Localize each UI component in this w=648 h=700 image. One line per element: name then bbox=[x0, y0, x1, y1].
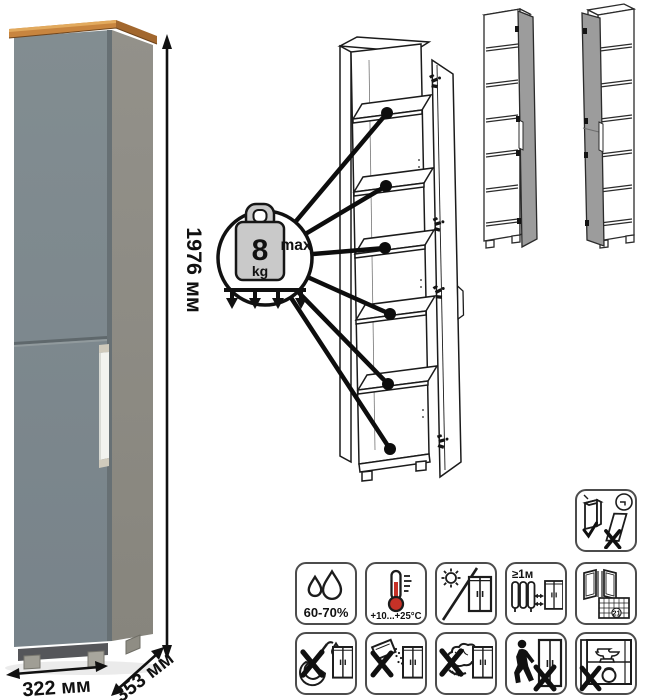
kettlebell-icon bbox=[603, 668, 616, 682]
icon-no-scrub bbox=[435, 632, 497, 695]
open-cabinet-drawing bbox=[340, 37, 464, 481]
icon-no-sunlight bbox=[435, 562, 497, 625]
calendar-day: 21 bbox=[612, 608, 620, 617]
calendar-icon: 21 bbox=[599, 598, 629, 618]
icon-anti-tip bbox=[575, 489, 637, 552]
product-sheet: 1976 мм 322 мм 353 мм bbox=[0, 0, 648, 700]
wardrobe-glyph bbox=[545, 581, 563, 609]
temperature-label: +10...+25°C bbox=[371, 611, 422, 622]
icon-temperature: +10...+25°C bbox=[365, 562, 427, 625]
open-window-icon bbox=[584, 570, 616, 599]
radiator-distance-icon: ≥1м bbox=[509, 566, 563, 622]
no-water-icon bbox=[299, 636, 353, 692]
powder-dots bbox=[395, 647, 403, 664]
icon-humidity: 60-70% bbox=[295, 562, 357, 625]
load-unit: kg bbox=[252, 263, 268, 279]
distance-label: ≥1м bbox=[512, 569, 533, 581]
load-max-label: max bbox=[280, 237, 311, 254]
wardrobe-glyph bbox=[333, 647, 353, 678]
icon-ventilation: 21 bbox=[575, 562, 637, 625]
sun-slash-icon bbox=[439, 566, 493, 622]
height-dimension bbox=[162, 34, 172, 660]
open-door bbox=[432, 60, 464, 477]
icon-no-heavy-load bbox=[575, 632, 637, 695]
anti-tip-icon bbox=[579, 493, 633, 549]
cabinet-body bbox=[9, 20, 157, 669]
icon-no-powder bbox=[365, 632, 427, 695]
door-mounting-variants bbox=[470, 0, 648, 256]
icon-heat-distance: ≥1м bbox=[505, 562, 567, 625]
no-heavy-load-icon bbox=[579, 636, 633, 692]
height-dimension-label: 1976 мм bbox=[182, 227, 206, 313]
shelf-load-diagram: 8 kg max bbox=[210, 10, 478, 492]
radiator-icon bbox=[512, 582, 535, 612]
icon-no-water bbox=[295, 632, 357, 695]
product-photo: 1976 мм 322 мм 353 мм bbox=[0, 0, 215, 700]
wardrobe-glyph bbox=[473, 647, 493, 678]
icon-no-pushing bbox=[505, 632, 567, 695]
no-powder-icon bbox=[369, 636, 423, 692]
variant-door-left bbox=[582, 4, 634, 248]
no-pushing-icon bbox=[509, 636, 563, 692]
window-calendar-icon: 21 bbox=[579, 566, 633, 622]
door-handle bbox=[99, 344, 109, 468]
double-arrows bbox=[534, 593, 544, 605]
person-pictogram bbox=[514, 639, 534, 683]
humidity-label: 60-70% bbox=[304, 605, 349, 620]
variant-door-right bbox=[484, 9, 537, 248]
sun-icon bbox=[442, 568, 461, 587]
no-scrub-icon bbox=[439, 636, 493, 692]
thermometer-icon: +10...+25°C bbox=[369, 566, 423, 622]
wardrobe-glyph bbox=[403, 647, 423, 678]
humidity-icon: 60-70% bbox=[299, 566, 353, 622]
width-dimension-label: 322 мм bbox=[22, 675, 92, 700]
wardrobe-glyph bbox=[469, 577, 491, 611]
